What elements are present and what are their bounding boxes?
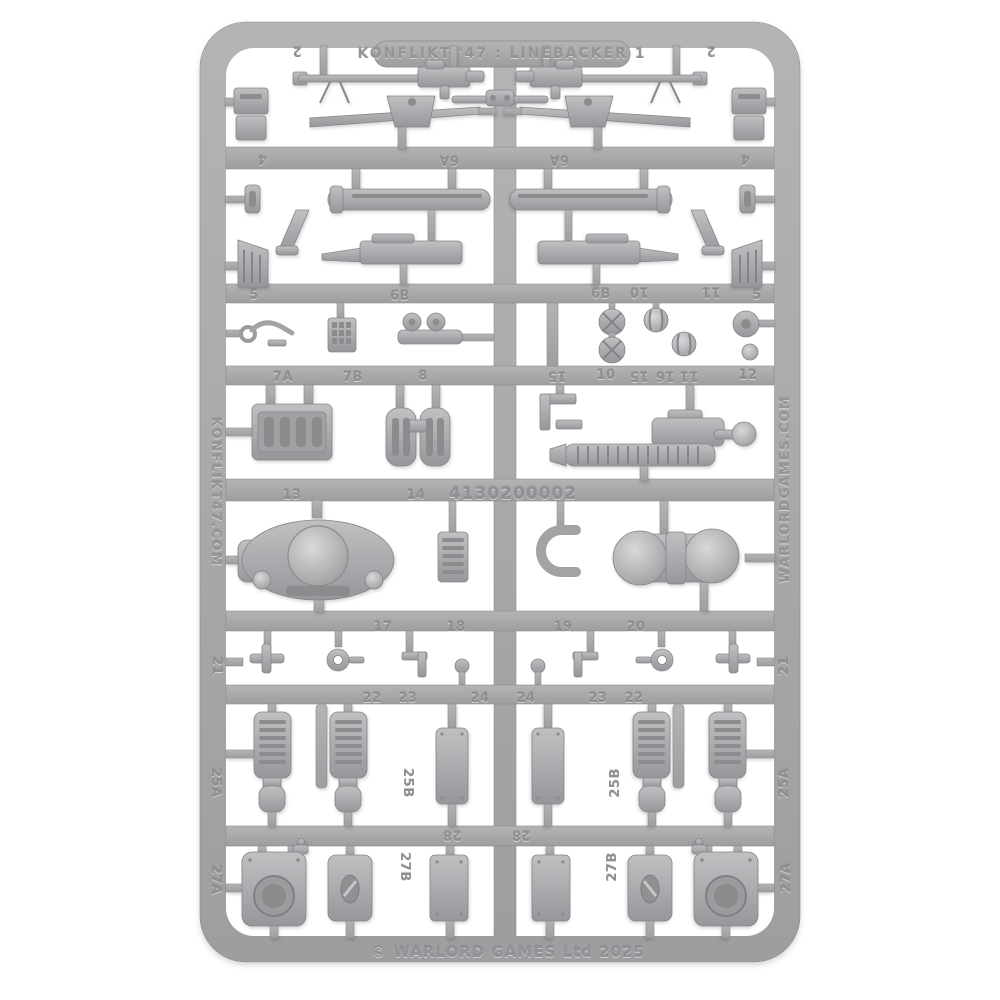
part-number-label: 17 bbox=[373, 620, 392, 635]
part-number-label: 5 bbox=[249, 288, 259, 303]
part-number-label: 12 bbox=[738, 368, 757, 383]
right-rail-url: WARLORDGAMES.COM bbox=[778, 395, 793, 583]
part-number-label: 11 bbox=[679, 368, 698, 383]
part-number-label: 25A bbox=[777, 768, 792, 798]
part-number-label: 6B bbox=[591, 287, 611, 302]
part-center-hinge bbox=[486, 90, 514, 106]
part-number-label: 18 bbox=[446, 620, 465, 635]
part-number-label: 27A bbox=[208, 865, 223, 895]
part-number-label: 27B bbox=[397, 852, 412, 882]
part-number-label: 21 bbox=[777, 656, 792, 675]
crossbar-6 bbox=[226, 685, 774, 704]
part-number-label: 2 bbox=[292, 43, 302, 58]
crossbar-2 bbox=[226, 284, 774, 303]
part-number-label: 11 bbox=[701, 284, 720, 299]
part-number-label: 16 bbox=[655, 368, 674, 383]
crossbar-1 bbox=[226, 147, 774, 169]
sprue-title: KONFLIKT '47 : LINEBACKER 1 bbox=[358, 46, 647, 62]
part-number-label: 20 bbox=[626, 620, 645, 635]
part-number-label: 27B bbox=[605, 852, 620, 882]
part-number-label: 25B bbox=[400, 768, 415, 798]
part-number-label: 6A bbox=[549, 152, 569, 167]
part-number-label: 6B bbox=[390, 289, 410, 304]
part-number-label: 23 bbox=[588, 691, 607, 706]
crossbar-5 bbox=[226, 611, 774, 631]
part-number-label: 27A bbox=[779, 863, 794, 893]
sprue-image: KONFLIKT '47 : LINEBACKER 1 4130200002 ©… bbox=[0, 0, 1000, 1000]
left-rail-url: KONFLIKT47.COM bbox=[208, 417, 223, 567]
copyright-text: © WARLORD GAMES Ltd 2025 bbox=[371, 943, 645, 961]
sprue-photo: KONFLIKT '47 : LINEBACKER 1 4130200002 ©… bbox=[0, 0, 1000, 1000]
part-number-label: 25A bbox=[208, 768, 223, 798]
part-number-label: 10 bbox=[629, 284, 648, 299]
part-number-label: 24 bbox=[516, 691, 535, 706]
part-number-label: 15 bbox=[547, 368, 566, 383]
part-number-label: 22 bbox=[624, 691, 643, 706]
part-number-label: 13 bbox=[282, 488, 301, 503]
part-number-label: 4 bbox=[740, 151, 750, 166]
part-number-label: 4 bbox=[257, 151, 267, 166]
part-number-label: 23 bbox=[398, 691, 417, 706]
part-number-label: 7B bbox=[343, 370, 363, 385]
part-number-label: 22 bbox=[362, 691, 381, 706]
part-number-label: 24 bbox=[470, 691, 489, 706]
catalog-number: 4130200002 bbox=[449, 484, 577, 504]
part-number-label: 2 bbox=[706, 43, 716, 58]
part-number-label: 14 bbox=[406, 488, 425, 503]
crossbar-7 bbox=[226, 826, 774, 846]
part-number-label: 8 bbox=[418, 369, 428, 384]
part-number-label: 28 bbox=[511, 827, 530, 842]
part-number-label: 15 bbox=[629, 368, 648, 383]
part-number-label: 25B bbox=[608, 768, 623, 798]
part-number-label: 10 bbox=[596, 368, 615, 383]
part-number-label: 19 bbox=[553, 620, 572, 635]
part-number-label: 5 bbox=[752, 288, 762, 303]
part-number-label: 28 bbox=[442, 827, 461, 842]
part-number-label: 21 bbox=[209, 656, 224, 675]
part-number-label: 7A bbox=[273, 370, 293, 385]
part-number-label: 6A bbox=[439, 152, 459, 167]
